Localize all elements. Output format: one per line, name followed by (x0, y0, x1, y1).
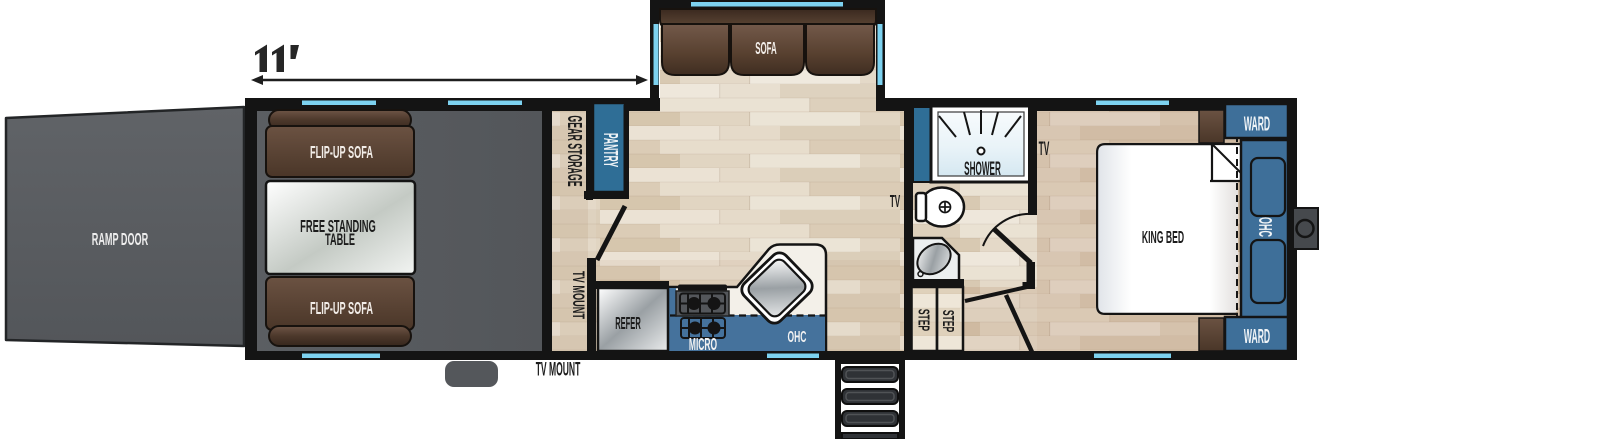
svg-text:FLIP-UP SOFA: FLIP-UP SOFA (310, 299, 373, 319)
svg-text:TABLE: TABLE (325, 230, 355, 249)
svg-text:WARD: WARD (1244, 326, 1270, 348)
svg-text:REFER: REFER (615, 313, 641, 333)
svg-text:RAMP DOOR: RAMP DOOR (92, 229, 148, 249)
svg-text:STEP: STEP (915, 309, 932, 331)
svg-text:STEP: STEP (939, 310, 956, 332)
svg-text:GEAR STORAGE: GEAR STORAGE (563, 115, 585, 186)
svg-text:FLIP-UP SOFA: FLIP-UP SOFA (310, 143, 373, 163)
svg-text:MICRO: MICRO (689, 333, 717, 353)
svg-text:PANTRY: PANTRY (599, 133, 621, 167)
svg-text:KING BED: KING BED (1142, 226, 1184, 246)
svg-text:OHC: OHC (788, 328, 807, 345)
svg-text:TV MOUNT: TV MOUNT (569, 271, 588, 319)
svg-text:SHOWER: SHOWER (964, 159, 1001, 180)
svg-text:OHC: OHC (1254, 217, 1274, 237)
svg-text:SOFA: SOFA (755, 37, 777, 58)
svg-text:WARD: WARD (1244, 113, 1270, 135)
svg-text:TV: TV (890, 190, 901, 211)
svg-text:TV MOUNT: TV MOUNT (536, 360, 581, 381)
svg-text:TV: TV (1039, 138, 1050, 160)
